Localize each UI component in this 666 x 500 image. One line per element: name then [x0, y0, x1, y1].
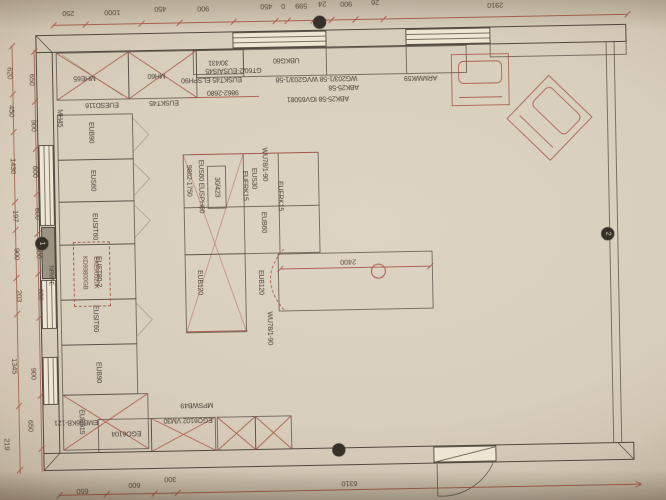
- cabinet-label: ABK25-58: [329, 83, 359, 91]
- dim-label: 650: [77, 487, 89, 495]
- dim-label: 1000: [104, 8, 120, 16]
- cabinet-label: EUS30: [250, 168, 257, 189]
- dim-label: 599: [295, 2, 307, 10]
- cabinet-label: EUS60 EUSPH60: [197, 160, 205, 214]
- dim-label: 620: [6, 67, 14, 79]
- dim-label: 2910: [487, 1, 503, 9]
- cabinet-label: EUESD116: [85, 101, 119, 109]
- right-wall-line: [606, 42, 614, 443]
- dim-label: 650: [28, 74, 36, 86]
- dim-label: 450: [7, 105, 15, 117]
- floor-plan-photo: 250 1000 450 900 450 0 599 24 900 26 291…: [0, 0, 666, 500]
- cabinet-label: EUB90: [87, 122, 94, 143]
- cabinet-label: EGO6102 VM30: [164, 416, 213, 424]
- cabinet-label: GT60/2-EUSAIS45: [205, 66, 261, 74]
- dim-label: 600: [33, 208, 41, 220]
- dim-label: 900: [30, 120, 38, 132]
- dim-label: 450: [260, 2, 272, 10]
- dim-label: 900: [29, 368, 37, 380]
- cabinet-label: EUFRK15: [276, 181, 284, 211]
- dim-label: 9862-2680: [207, 88, 239, 96]
- dim-label: 203: [15, 290, 23, 302]
- door: [434, 446, 497, 496]
- dim-label: 900: [340, 0, 352, 8]
- cabinet-label: MPSWB49: [180, 401, 213, 409]
- cabinet-label: EUSKT45 ELSPH90: [181, 75, 242, 83]
- cabinet-label: EUB120: [257, 270, 264, 295]
- cabinet-label: EUSIT60: [91, 213, 99, 240]
- dim-label: 219: [3, 438, 11, 450]
- dim-label: 26: [371, 0, 379, 6]
- dim-label: 900: [13, 248, 21, 260]
- armchair: [451, 54, 509, 106]
- dim-label: 1430: [9, 158, 17, 174]
- dim-label: 600: [37, 289, 45, 301]
- dim-label: 9862-1750: [185, 165, 193, 197]
- cabinet-label: 30/423: [213, 177, 220, 197]
- cabinet-label: 30/431: [208, 58, 228, 65]
- dim-label: 6310: [341, 480, 357, 488]
- cabinet-label: EUB60: [260, 212, 267, 233]
- cabinet-label: EUSIT60: [92, 305, 100, 332]
- dim-label: 0: [281, 2, 285, 10]
- cabinet-label: EUFRK15: [241, 171, 249, 201]
- dim-label: 450: [154, 5, 166, 13]
- cabinet-label: WU78/1-90: [261, 147, 269, 181]
- dim-label: 900: [197, 5, 209, 13]
- cabinet-label: MHE65: [73, 74, 95, 81]
- wall-details: [36, 24, 634, 470]
- dim-label: 650: [26, 420, 34, 432]
- armchair-rotated: [507, 75, 592, 160]
- dim-label: 1345: [10, 358, 18, 374]
- cabinet-label: UBKG60: [273, 56, 300, 64]
- cabinet-label: EMB96KB-121: [54, 418, 98, 426]
- dim-label: 300: [164, 475, 176, 483]
- cabinet-label: WU78/1-90: [266, 311, 274, 345]
- cabinet-label: EUB120: [196, 270, 203, 295]
- island-dim-label: 2400: [340, 258, 356, 266]
- cabinet-label: MH45: [56, 109, 63, 127]
- dim-label: 250: [62, 9, 74, 17]
- cabinet-label: EUS60: [89, 170, 96, 191]
- dim-label: 24: [318, 0, 326, 8]
- floor-plan-drawing: 250 1000 450 900 450 0 599 24 900 26 291…: [0, 0, 666, 500]
- cabinet-label: EUSKT45: [149, 98, 179, 106]
- cabinet-label: EGO6104: [112, 429, 142, 437]
- cabinet-label: EUB90: [95, 362, 102, 383]
- appliance-label: EKE96520K: [92, 256, 99, 289]
- dim-label: 600: [32, 166, 40, 178]
- radiator-label: NRW-E: [47, 265, 54, 285]
- dim-label: 600: [128, 481, 140, 489]
- cabinet-label: MH60: [148, 72, 166, 79]
- cabinet-label: ABK25-58 IGV65081: [287, 94, 349, 102]
- walls: [36, 24, 634, 470]
- dim-label: 197: [11, 210, 19, 222]
- appliance-label: KD93800GB: [81, 256, 88, 290]
- cabinet-label: ARMWK59: [404, 73, 437, 81]
